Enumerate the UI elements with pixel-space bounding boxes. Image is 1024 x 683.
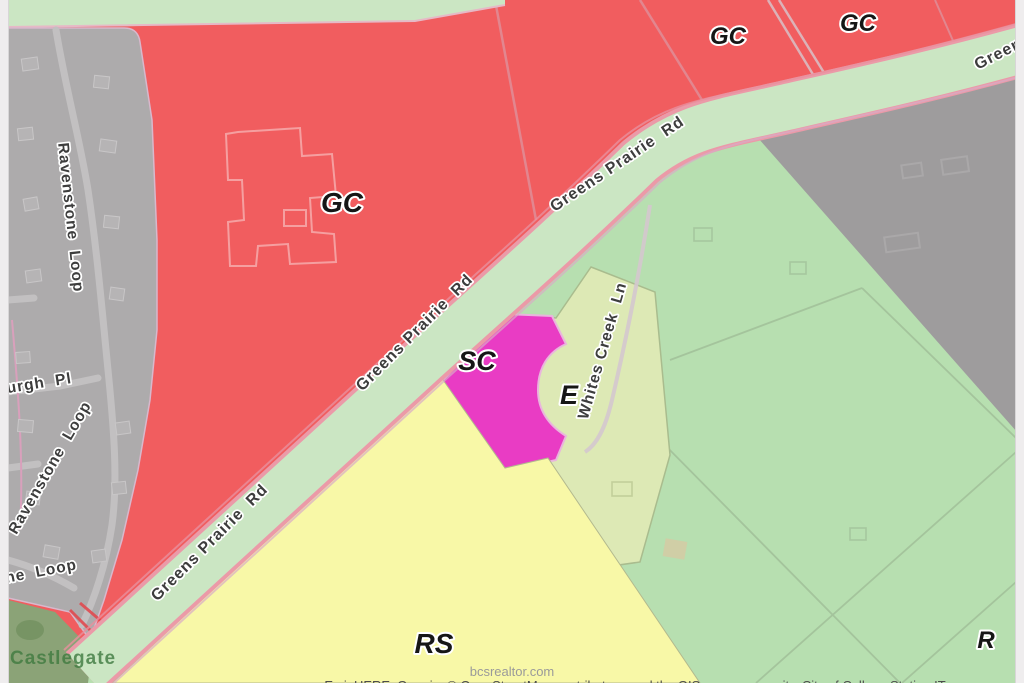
- zone-label-rs: RS: [415, 628, 454, 659]
- zoning-map-page: GC GC GC SC E RS R Greens Prairie Rd Gre…: [0, 0, 1024, 683]
- zone-label-gc-top1: GC: [710, 23, 747, 50]
- attribution-text: Esri, HERE, Garmin, © OpenStreetMap cont…: [324, 678, 945, 683]
- tan-patch-e: [663, 538, 688, 560]
- zone-label-r: R: [977, 627, 995, 654]
- greenbelt-dark-patch: [16, 620, 44, 640]
- zone-label-gc-top2: GC: [840, 10, 877, 37]
- zoning-map-canvas[interactable]: GC GC GC SC E RS R Greens Prairie Rd Gre…: [0, 0, 1024, 683]
- zone-label-e: E: [560, 380, 579, 410]
- zone-label-sc: SC: [458, 346, 496, 376]
- zone-label-gc-main: GC: [321, 187, 364, 218]
- neighborhood-label-castlegate: Castlegate: [10, 648, 116, 669]
- watermark-text: bcsrealtor.com: [470, 664, 555, 679]
